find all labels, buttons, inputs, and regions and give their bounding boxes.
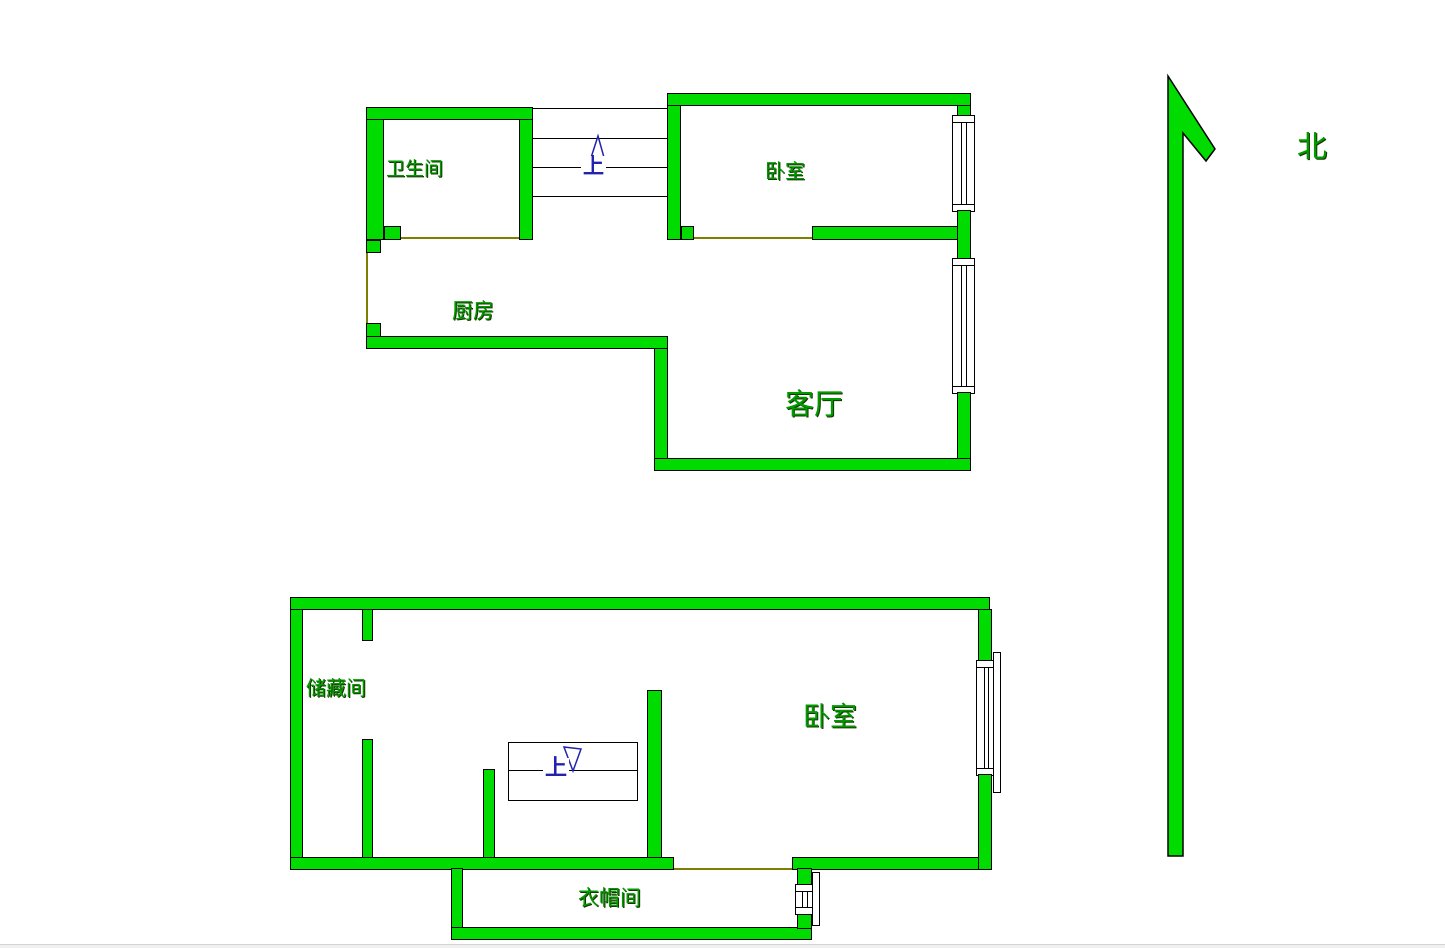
window-glass-line bbox=[802, 892, 803, 907]
north-arrow-icon bbox=[1150, 60, 1230, 870]
living-room-wall-left bbox=[654, 348, 668, 459]
bathroom-wall-left bbox=[366, 119, 384, 240]
window-frame-tick bbox=[952, 115, 975, 123]
lower-right-wall-top bbox=[978, 609, 992, 662]
stairs-left-wall bbox=[483, 769, 495, 858]
lower-wall-top bbox=[290, 597, 990, 610]
room-label-storage: 储藏间 bbox=[306, 678, 366, 698]
door-jamb-outer-frame bbox=[812, 872, 820, 926]
lower-bedroom-left-wall bbox=[647, 690, 662, 858]
room-label-living-room: 客厅 bbox=[785, 390, 843, 419]
right-wall-segment bbox=[957, 210, 971, 260]
window-glass-line bbox=[984, 668, 985, 768]
bathroom-wall-bottom-stub bbox=[384, 226, 401, 240]
stairs-tread-line bbox=[533, 108, 667, 109]
floor-plan-canvas: 上 卫生间 卧室 厨房 客厅 bbox=[0, 0, 1445, 948]
upper-bedroom-wall-top bbox=[667, 93, 971, 106]
lower-wall-left bbox=[290, 609, 303, 868]
kitchen-left-wall-stub-bottom bbox=[366, 323, 381, 337]
upper-bedroom-wall-left bbox=[667, 105, 681, 240]
room-label-upper-bedroom: 卧室 bbox=[765, 161, 805, 181]
cloakroom-wall-bottom bbox=[451, 927, 812, 940]
window-glass-line bbox=[966, 266, 967, 386]
lower-right-wall-bottom bbox=[978, 774, 992, 870]
stairs-tread-line bbox=[533, 196, 667, 197]
storage-partition-wall bbox=[362, 739, 373, 858]
living-room-wall-bottom bbox=[654, 458, 971, 471]
window-glass-line bbox=[961, 266, 962, 386]
lower-bedroom-window-outer-frame bbox=[993, 652, 1001, 793]
storage-partition-stub bbox=[362, 609, 373, 641]
north-label: 北 bbox=[1297, 133, 1327, 163]
upper-bedroom-wall-bottom-stub bbox=[681, 226, 694, 240]
window-glass-line bbox=[961, 123, 962, 204]
window-glass-line bbox=[807, 892, 808, 907]
window-frame-tick bbox=[952, 258, 975, 266]
room-label-lower-bedroom: 卧室 bbox=[803, 704, 857, 731]
stairs-up-label-upper: 上 bbox=[581, 156, 606, 177]
kitchen-left-opening bbox=[366, 253, 368, 323]
right-wall-segment bbox=[957, 392, 971, 459]
kitchen-wall-bottom bbox=[366, 336, 668, 349]
bathroom-wall-top bbox=[366, 107, 533, 120]
room-label-cloakroom: 衣帽间 bbox=[578, 888, 641, 909]
room-label-bathroom: 卫生间 bbox=[386, 160, 443, 179]
upper-bedroom-window bbox=[952, 115, 975, 212]
room-label-kitchen: 厨房 bbox=[452, 301, 494, 322]
cloakroom-opening bbox=[674, 868, 792, 870]
bottom-edge-strip bbox=[0, 944, 1445, 948]
window-glass-line bbox=[988, 668, 989, 768]
lower-wall-bottom-left bbox=[290, 857, 674, 870]
bathroom-door-opening bbox=[401, 237, 519, 239]
living-room-window bbox=[952, 258, 975, 394]
bathroom-wall-right bbox=[519, 119, 533, 240]
upper-bedroom-wall-bottom bbox=[812, 226, 958, 240]
upper-bedroom-door-opening bbox=[694, 237, 812, 239]
lower-wall-bottom-right bbox=[792, 857, 992, 870]
kitchen-left-wall-stub-top bbox=[366, 240, 381, 253]
stairs-up-label-lower: 上 bbox=[543, 758, 569, 780]
cloakroom-right-strip-bottom bbox=[797, 913, 812, 929]
window-glass-line bbox=[966, 123, 967, 204]
